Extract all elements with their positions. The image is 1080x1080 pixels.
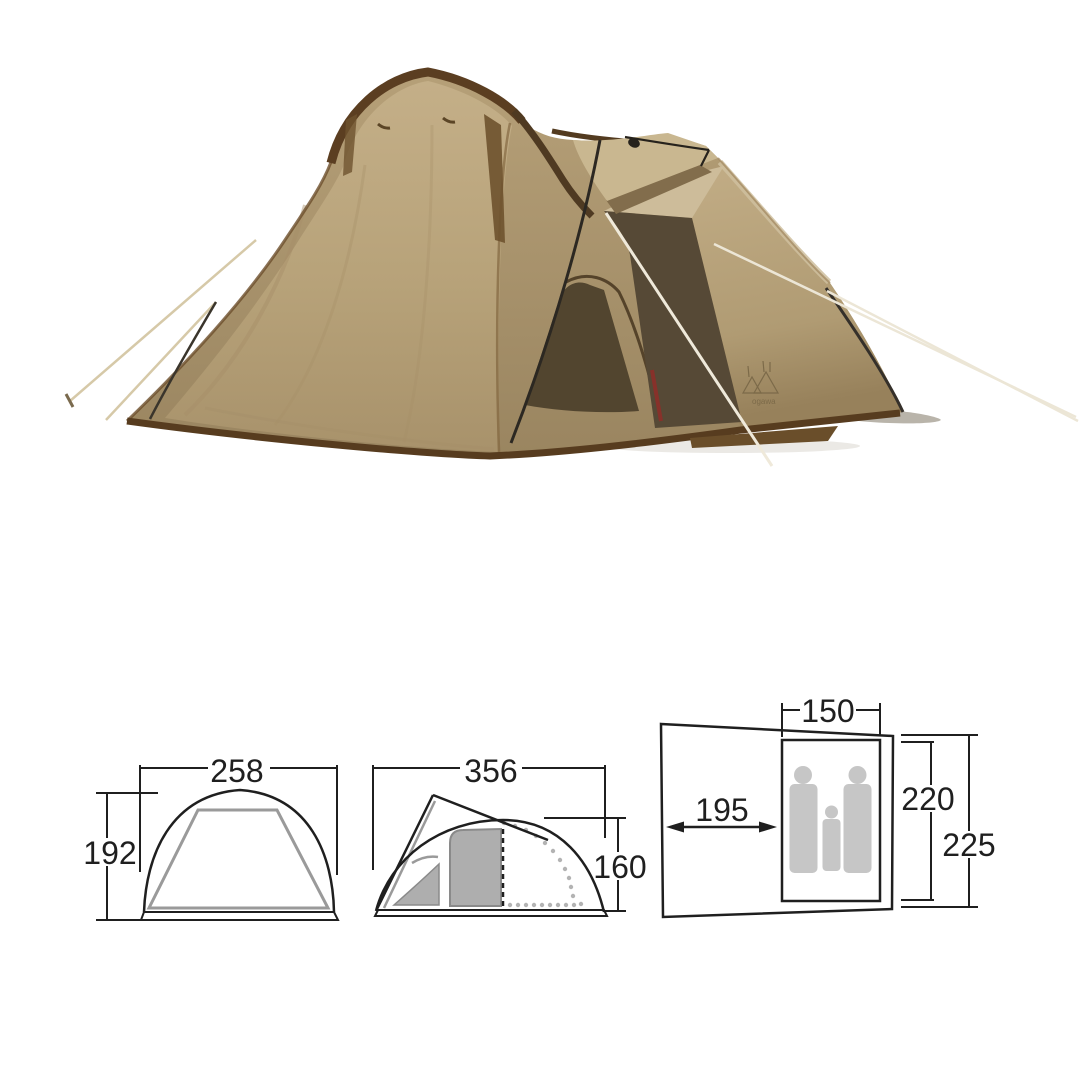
svg-text:195: 195 (695, 792, 748, 828)
svg-text:192: 192 (83, 835, 136, 871)
svg-text:220: 220 (901, 781, 954, 817)
svg-text:225: 225 (942, 827, 995, 863)
svg-text:258: 258 (210, 753, 263, 789)
svg-text:ogawa: ogawa (752, 397, 776, 406)
svg-text:150: 150 (801, 693, 854, 729)
svg-text:160: 160 (593, 849, 646, 885)
svg-text:356: 356 (464, 753, 517, 789)
